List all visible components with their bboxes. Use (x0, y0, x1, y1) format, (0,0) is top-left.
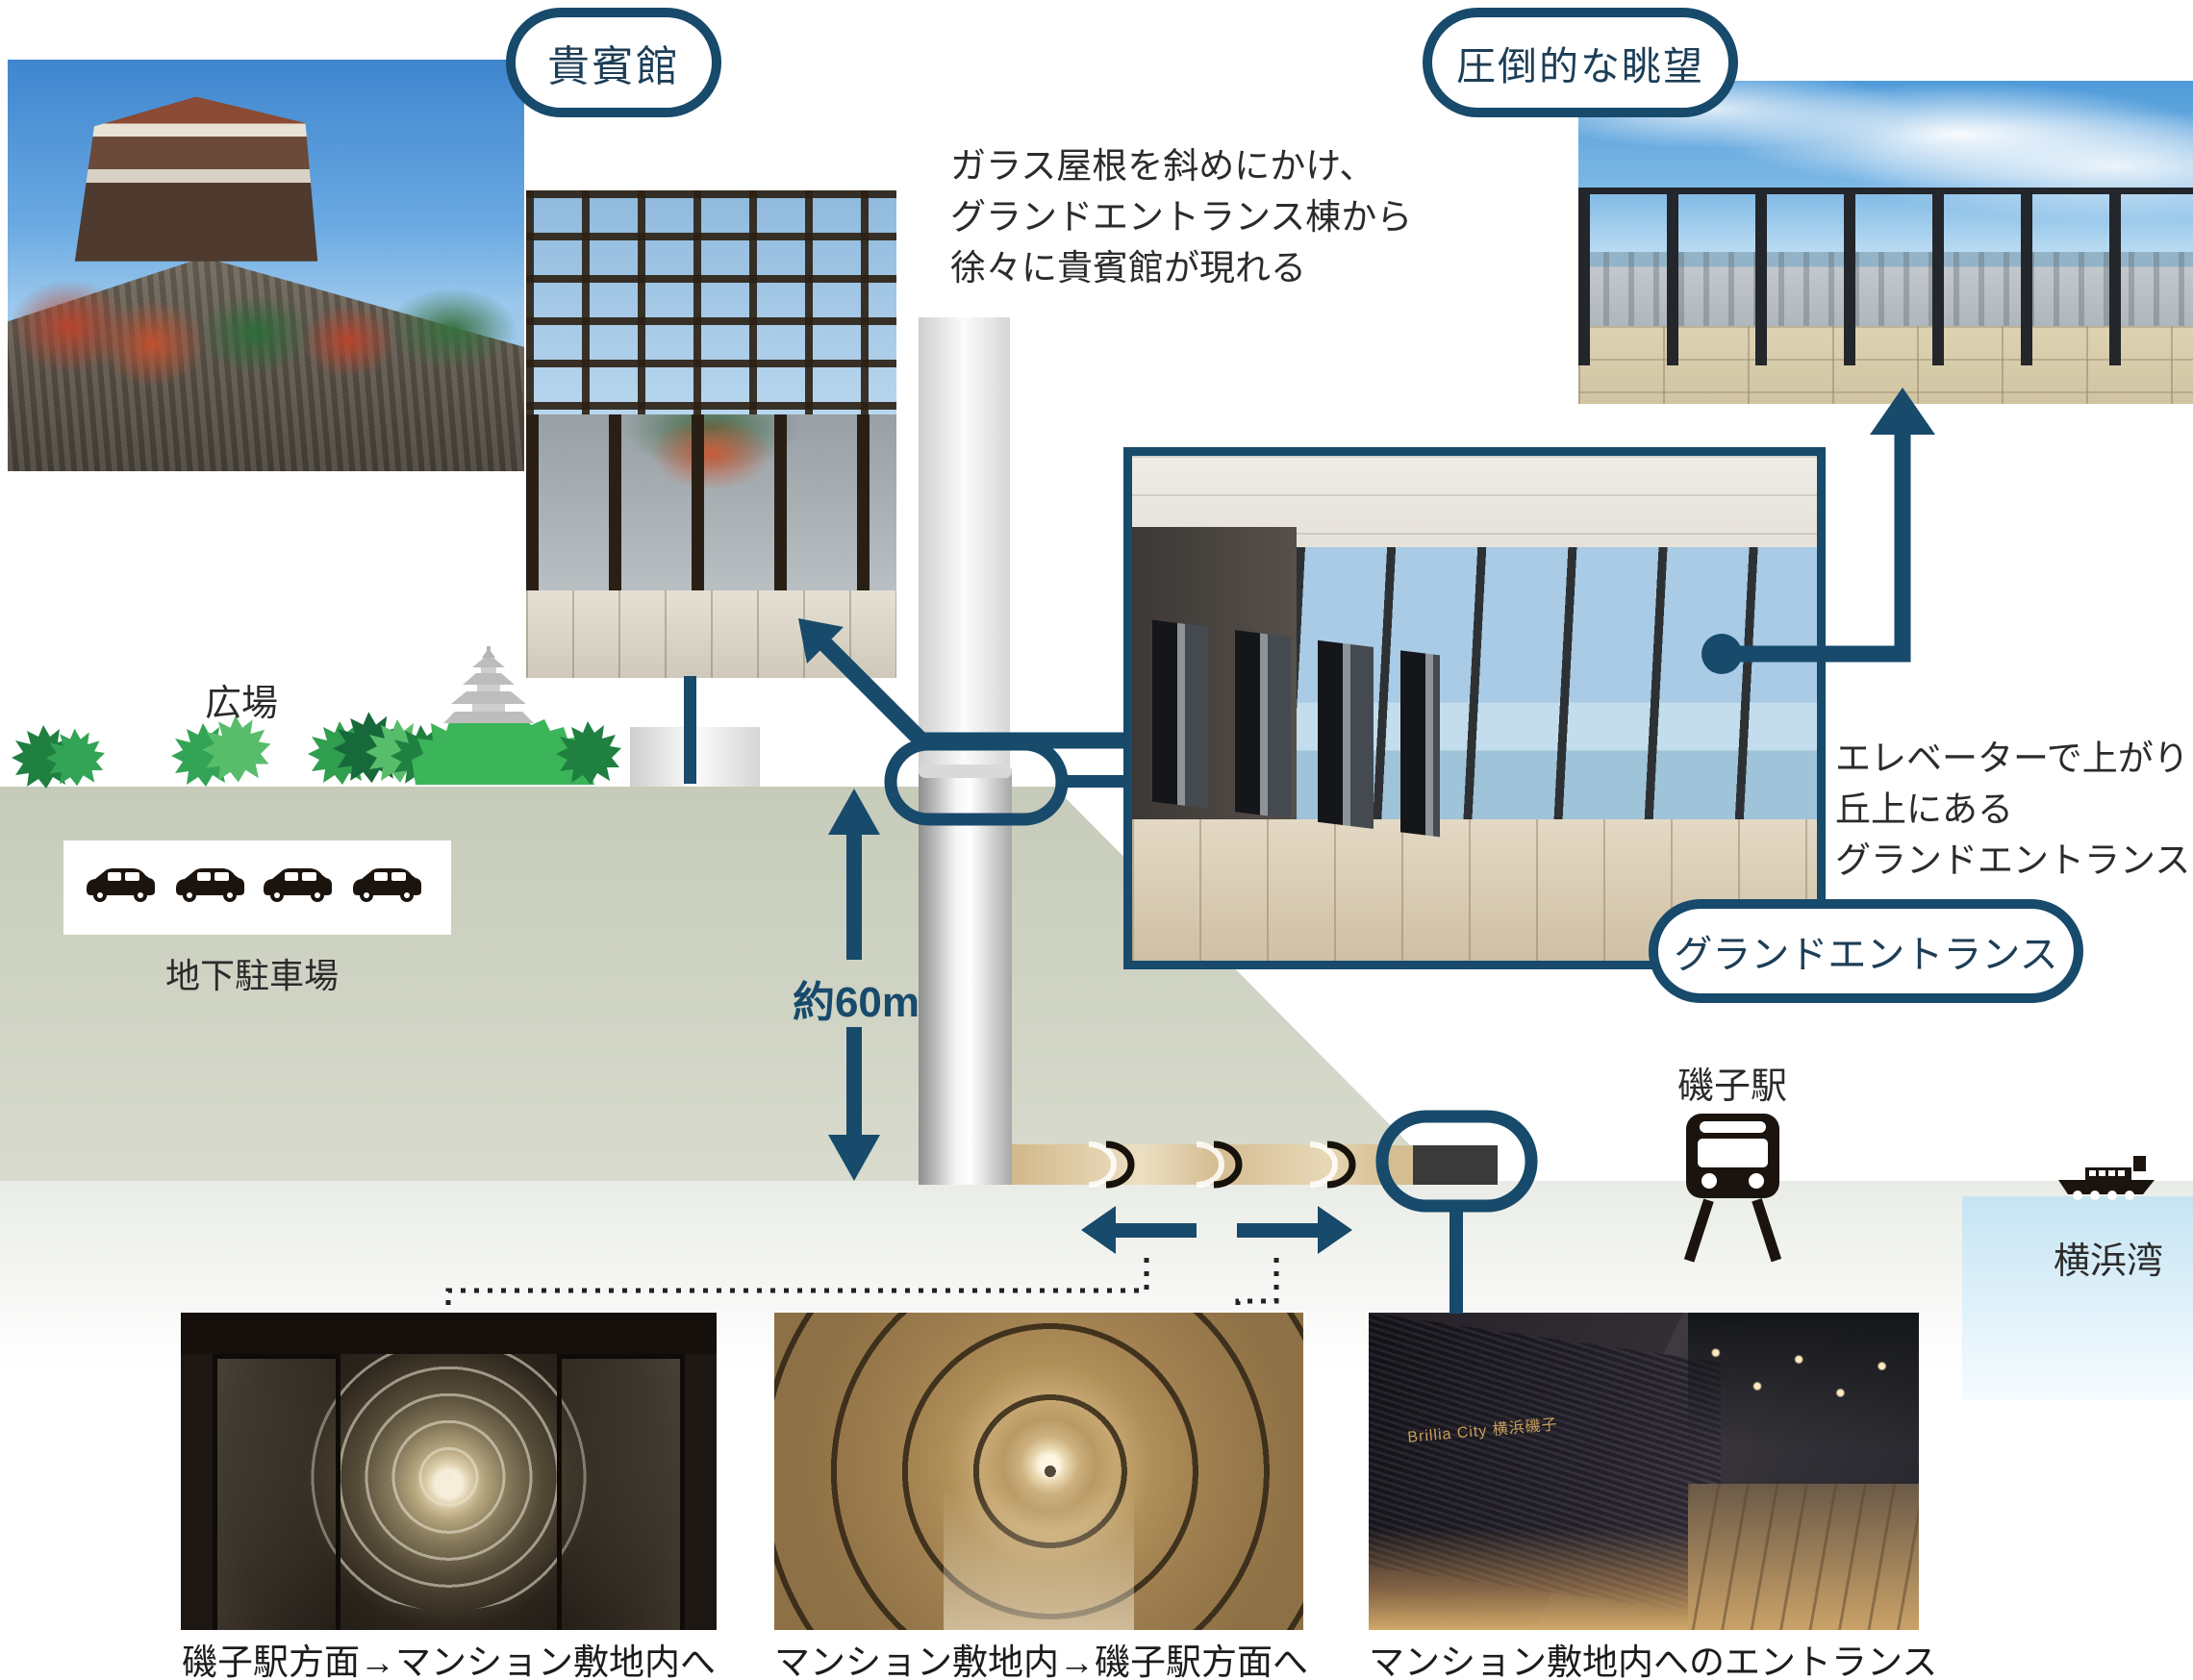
photo-grand-entrance-interior (1123, 447, 1826, 969)
pill-overwhelming-view: 圧倒的な眺望 (1423, 8, 1738, 117)
photo-panoramic-view (1578, 81, 2193, 404)
annotation-elevator: エレベーターで上がり 丘上にある グランドエントランス (1835, 733, 2190, 886)
tunnel-floor-art (944, 1488, 1134, 1631)
label-plaza: 広場 (205, 673, 278, 726)
caption-tunnel-to-station: マンション敷地内→磯子駅方面へ (774, 1633, 1303, 1680)
glass-door-right-art (557, 1354, 685, 1630)
photo-tunnel-from-station (181, 1313, 717, 1630)
guesthouse-building-art (75, 97, 317, 262)
photo-tunnel-to-station (774, 1313, 1303, 1630)
pill-kihinkan-label: 貴賓館 (547, 32, 680, 93)
entrance-tower-silhouette (919, 317, 1010, 789)
label-underground-parking: 地下駐車場 (165, 948, 339, 998)
photo-site-entrance-night: Brillia City 横浜磯子 (1369, 1313, 1919, 1630)
sea-yokohama-bay (1962, 1196, 2193, 1400)
tunnel-cross-section (1012, 1144, 1498, 1185)
ceiling-lights-art (1688, 1313, 1919, 1446)
label-height-60m: 約60m (779, 967, 933, 1029)
tunnel-portal (1413, 1145, 1498, 1185)
pill-grand-entrance: グランドエントランス (1649, 899, 2083, 1003)
ship-icon (2058, 1156, 2155, 1200)
annotation-glass-roof: ガラス屋根を斜めにかけ、 グランドエントランス棟から 徐々に貴賓館が現れる (950, 140, 1412, 293)
pill-kihinkan: 貴賓館 (506, 8, 721, 117)
annotation-line: グランドエントランス (1835, 835, 2190, 886)
annotation-line: グランドエントランス棟から (950, 191, 1412, 242)
autumn-foliage-art (8, 257, 524, 397)
annotation-line: 丘上にある (1835, 784, 2190, 835)
photo-glass-canopy-entrance (526, 190, 896, 678)
security-gates-art (1152, 620, 1440, 838)
caption-tunnel-from-station: 磯子駅方面→マンション敷地内へ (181, 1633, 717, 1680)
photo-kihinkan-guesthouse (8, 60, 524, 471)
caption-site-entrance: マンション敷地内へのエントランス (1369, 1633, 1919, 1680)
pill-grand-entrance-label: グランドエントランス (1674, 923, 2057, 979)
railing-posts-art (1578, 188, 2193, 365)
door-header-art (181, 1313, 717, 1354)
pavilion-silhouette (630, 727, 760, 787)
annotation-line: ガラス屋根を斜めにかけ、 (950, 140, 1412, 191)
underground-parking (63, 840, 451, 935)
colonnade-art (526, 414, 896, 590)
glass-roof-art (526, 190, 896, 414)
pill-view-label: 圧倒的な眺望 (1456, 34, 1704, 91)
walkway-art (1688, 1484, 1919, 1630)
annotation-line: 徐々に貴賓館が現れる (950, 242, 1412, 293)
label-isogo-station: 磯子駅 (1654, 1056, 1810, 1109)
paved-floor-art (526, 590, 896, 678)
site-cross-section-infographic: Brillia City 横浜磯子 (0, 0, 2193, 1680)
annotation-line: エレベーターで上がり (1835, 733, 2190, 784)
glass-door-left-art (213, 1354, 340, 1630)
pagoda-icon (443, 646, 534, 723)
label-yokohama-bay: 横浜湾 (2031, 1231, 2185, 1284)
